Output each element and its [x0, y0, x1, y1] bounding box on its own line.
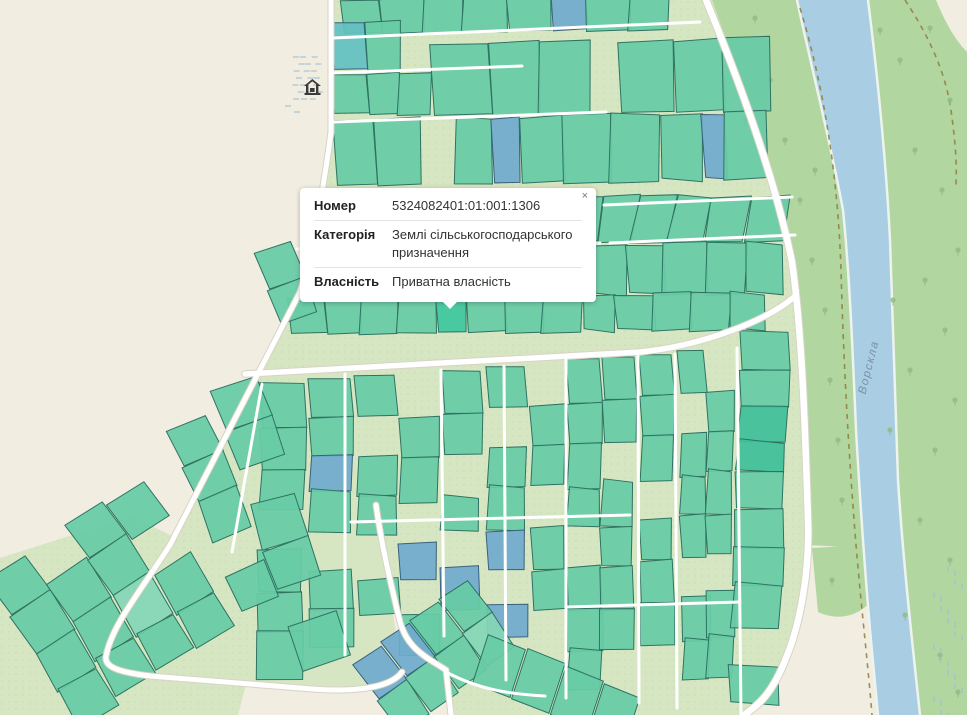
parcel[interactable] — [398, 542, 436, 580]
parcel[interactable] — [453, 116, 492, 185]
parcel[interactable] — [705, 514, 731, 554]
parcel[interactable] — [689, 292, 732, 332]
parcel[interactable] — [739, 331, 792, 371]
parcel[interactable] — [607, 112, 660, 183]
popup-field-value: Землі сільськогосподарського призначення — [392, 226, 582, 262]
parcel[interactable] — [640, 435, 673, 482]
parcel[interactable] — [618, 40, 675, 113]
parcel[interactable] — [737, 405, 788, 444]
popup-field-label: Власність — [314, 273, 392, 291]
parcel[interactable] — [639, 518, 671, 560]
popup-row: Номер 5324082401:01:001:1306 — [314, 192, 582, 220]
parcel[interactable] — [640, 602, 675, 646]
parcel[interactable] — [309, 416, 354, 456]
parcel[interactable] — [730, 582, 782, 630]
parcel[interactable] — [639, 355, 675, 396]
popup-row: Категорія Землі сільськогосподарського п… — [314, 220, 582, 267]
parcel[interactable] — [706, 431, 733, 472]
parcel[interactable] — [367, 72, 400, 114]
parcel[interactable] — [461, 0, 508, 33]
popup-field-label: Номер — [314, 197, 392, 215]
parcel[interactable] — [430, 44, 493, 116]
parcel[interactable] — [399, 457, 438, 504]
parcel[interactable] — [567, 402, 603, 444]
parcel[interactable] — [354, 375, 398, 416]
parcel[interactable] — [532, 569, 568, 611]
parcel[interactable] — [602, 398, 637, 443]
field-lane — [504, 366, 506, 680]
parcel[interactable] — [566, 487, 599, 527]
parcel[interactable] — [705, 242, 748, 296]
popup-field-value: Приватна власність — [392, 273, 582, 291]
popup-tail — [441, 300, 459, 318]
parcel[interactable] — [738, 368, 790, 408]
parcel[interactable] — [529, 404, 565, 447]
parcel[interactable] — [308, 379, 354, 418]
parcel[interactable] — [374, 117, 422, 186]
parcel[interactable] — [397, 73, 431, 116]
parcel[interactable] — [441, 371, 483, 414]
parcel[interactable] — [735, 439, 784, 473]
parcel[interactable] — [566, 359, 603, 404]
popup-field-label: Категорія — [314, 226, 392, 262]
close-icon[interactable]: × — [580, 189, 590, 204]
parcel[interactable] — [591, 245, 627, 297]
parcel[interactable] — [491, 117, 521, 183]
parcel[interactable] — [567, 565, 603, 610]
parcel[interactable] — [537, 40, 592, 116]
parcel[interactable] — [530, 526, 564, 570]
parcel[interactable] — [487, 447, 526, 488]
parcel[interactable] — [640, 394, 675, 436]
parcel[interactable] — [520, 115, 566, 183]
parcel[interactable] — [706, 590, 735, 638]
parcel[interactable] — [562, 113, 612, 183]
parcel[interactable] — [489, 40, 541, 115]
parcel[interactable] — [600, 479, 633, 527]
parcel[interactable] — [599, 526, 632, 566]
parcel[interactable] — [399, 416, 440, 458]
parcel[interactable] — [706, 390, 735, 432]
parcel[interactable] — [614, 295, 656, 330]
parcel[interactable] — [601, 357, 637, 400]
parcel[interactable] — [746, 241, 784, 295]
parcel[interactable] — [640, 559, 675, 604]
map-canvas[interactable]: Ворскла — [0, 0, 967, 715]
parcel[interactable] — [651, 292, 692, 332]
parcel[interactable] — [661, 241, 708, 295]
parcel[interactable] — [625, 245, 666, 294]
parcel[interactable] — [365, 20, 401, 70]
field-lane — [638, 356, 639, 703]
parcel[interactable] — [673, 38, 725, 112]
parcel[interactable] — [331, 23, 368, 70]
parcel[interactable] — [506, 0, 551, 31]
parcel[interactable] — [733, 507, 785, 550]
parcel[interactable] — [734, 470, 784, 509]
parcel[interactable] — [661, 114, 704, 183]
parcel[interactable] — [679, 432, 707, 477]
field-lane — [675, 354, 677, 708]
parcel[interactable] — [567, 443, 601, 490]
parcel[interactable] — [530, 444, 565, 485]
parcel[interactable] — [705, 469, 731, 515]
parcel[interactable] — [679, 514, 706, 558]
parcel[interactable] — [331, 75, 370, 114]
parcel[interactable] — [442, 412, 483, 455]
parcel[interactable] — [440, 495, 479, 531]
parcel[interactable] — [599, 608, 634, 650]
parcel[interactable] — [679, 474, 706, 514]
popup-field-value: 5324082401:01:001:1306 — [392, 197, 582, 215]
parcel[interactable] — [421, 0, 463, 34]
parcel-info-popup: × Номер 5324082401:01:001:1306 Категорія… — [300, 188, 596, 302]
parcel[interactable] — [567, 608, 603, 652]
parcel[interactable] — [333, 120, 378, 185]
parcel[interactable] — [677, 350, 707, 393]
popup-row: Власність Приватна власність — [314, 267, 582, 296]
parcel[interactable] — [486, 367, 528, 408]
parcel[interactable] — [356, 455, 398, 496]
